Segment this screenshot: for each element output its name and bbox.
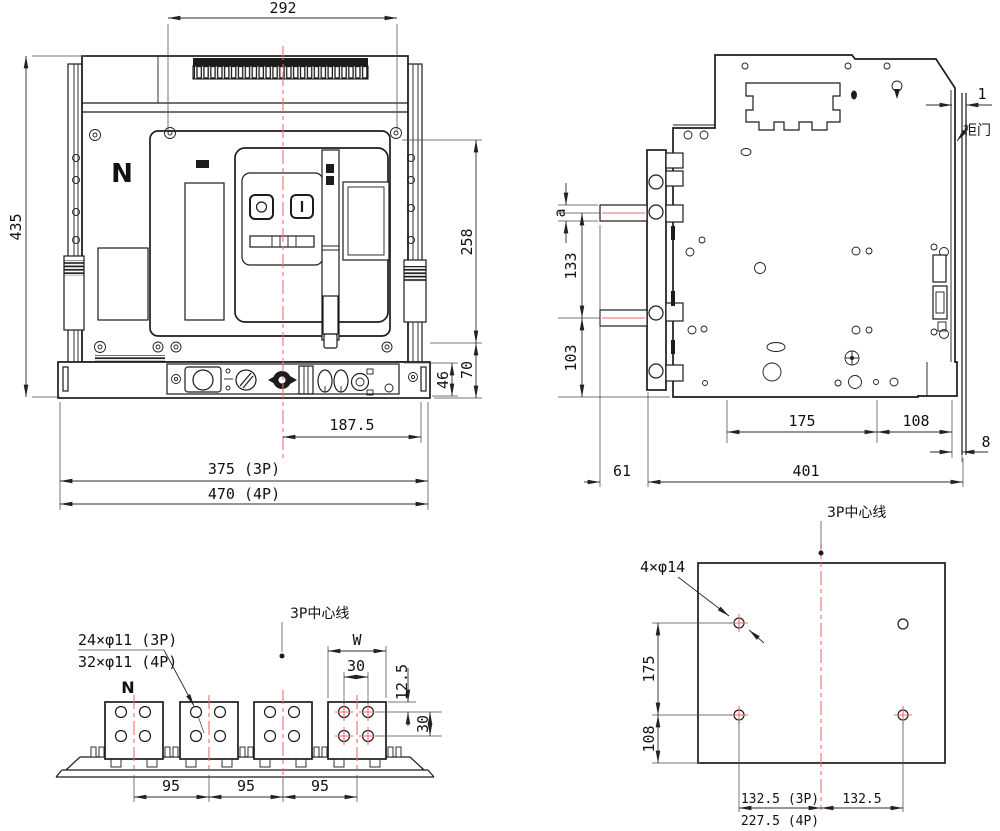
cabinet-door-text: 柜门 (963, 123, 991, 139)
dim-133-label: 133 (562, 252, 580, 279)
dim-175-mount-label: 175 (640, 655, 658, 682)
dim-132-3p-label: 132.5 (3P) (741, 792, 819, 807)
front-view: N (7, 0, 482, 510)
cabinet-door-line (962, 93, 966, 455)
dim-187-label: 187.5 (329, 416, 374, 434)
dim-401-label: 401 (792, 462, 819, 480)
dim-8-label: 8 (981, 433, 990, 451)
bottom-terminal-view: N 24×φ11 (3P) 32×φ11 (4P) 3P中心线 W 30 (56, 606, 442, 802)
dim-61-label: 61 (613, 462, 631, 480)
dim-175-side: 175 (727, 400, 877, 443)
dim-95b-label: 95 (237, 777, 255, 795)
sill-hatch (95, 355, 165, 362)
dim-pole-pitch: 95 95 95 (134, 775, 357, 802)
ground-screw (845, 351, 859, 365)
arc-chute-vents (193, 58, 368, 79)
terminal-centerlines (134, 690, 357, 775)
dim-1-label: 1 (977, 85, 986, 103)
bottom-centerline-label: 3P中心线 (290, 606, 349, 622)
cabinet-door-label: 柜门 (957, 123, 991, 141)
dim-401: 401 (648, 458, 963, 487)
dim-30h-label: 30 (347, 657, 365, 675)
side-view: 1 柜门 a 133 103 175 1 (551, 55, 992, 487)
charging-handle[interactable] (322, 150, 339, 348)
dim-175-side-label: 175 (788, 412, 815, 430)
dim-30-horizontal: 30 (344, 657, 368, 704)
dim-227-4p-label: 227.5 (4P) (741, 814, 819, 829)
dim-187-5: 187.5 (283, 402, 421, 443)
dim-103-label: 103 (562, 344, 580, 371)
reset-slot (196, 160, 209, 168)
dim-133: 133 (558, 213, 600, 318)
drawing-canvas: N (0, 0, 1000, 831)
mounting-hole-view: 3P中心线 4×φ14 175 108 (640, 505, 945, 829)
dim-61: 61 (584, 225, 648, 487)
dim-470-label: 470 (4P) (208, 485, 280, 503)
mount-holes-label: 4×φ14 (640, 558, 685, 576)
dim-435-label: 435 (7, 213, 25, 240)
dim-w-label: W (352, 631, 362, 649)
dim-95c-label: 95 (311, 777, 329, 795)
dim-132-label: 132.5 (842, 792, 881, 807)
dim-470-4p: 470 (4P) (60, 485, 428, 504)
mount-centerline-label: 3P中心线 (827, 505, 886, 521)
dim-30v-label: 30 (414, 715, 432, 733)
rating-nameplate (343, 182, 389, 260)
dim-108-mount: 108 (640, 715, 700, 763)
centerline-callout-mount: 3P中心线 (819, 505, 887, 556)
drawout-rail (58, 362, 430, 398)
holes-3p-label: 24×φ11 (3P) (78, 631, 177, 649)
holes-4p-label: 32×φ11 (4P) (78, 653, 177, 671)
dim-12-5-label: 12.5 (393, 664, 411, 700)
side-cutout (746, 83, 840, 130)
dim-8: 8 (930, 433, 991, 462)
bottom-n-label: N (121, 678, 134, 697)
dim-375-label: 375 (3P) (208, 460, 280, 478)
dim-258-label: 258 (458, 228, 476, 255)
dim-292-label: 292 (269, 0, 296, 17)
engineering-drawing: N (0, 0, 1000, 831)
neutral-pole-label: N (111, 159, 133, 189)
dim-95a-label: 95 (162, 777, 180, 795)
busbar-stubs (600, 205, 647, 326)
off-button[interactable] (250, 195, 273, 219)
dim-108-side-label: 108 (902, 412, 929, 430)
dim-70-label: 70 (458, 361, 476, 379)
dim-108-mount-label: 108 (640, 725, 658, 752)
dim-108-side: 108 (877, 400, 952, 458)
on-button[interactable] (291, 195, 313, 218)
dim-46-label: 46 (434, 371, 452, 389)
